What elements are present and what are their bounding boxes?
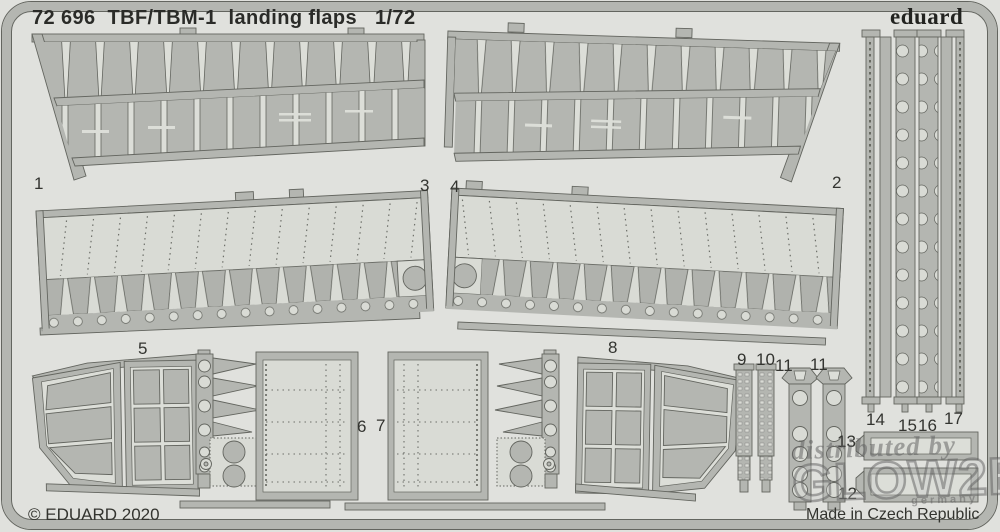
part-label-17: 17 xyxy=(944,410,963,427)
part-label-4: 4 xyxy=(450,178,459,195)
part-7-skin xyxy=(388,352,488,500)
actuator-strip-left xyxy=(196,350,260,488)
photoetch-sheet: 72 696 TBF/TBM-1 landing flaps 1/72 edua… xyxy=(0,0,1000,532)
eduard-logo: eduard xyxy=(890,5,963,28)
part-label-8: 8 xyxy=(608,339,617,356)
part-6-skin xyxy=(256,352,358,500)
part-label-7: 7 xyxy=(376,417,385,434)
part-8-winglet xyxy=(575,357,742,502)
part-label-13: 13 xyxy=(837,433,856,450)
made-in-text: Made in Czech Republic xyxy=(806,507,979,523)
part-label-2: 2 xyxy=(832,174,841,191)
part-label-1: 1 xyxy=(34,175,43,192)
copyright-text: © EDUARD 2020 xyxy=(28,506,160,523)
parts-14-17-stiffeners xyxy=(862,30,964,412)
part-label-16: 16 xyxy=(918,417,937,434)
part-label-14: 14 xyxy=(866,411,885,428)
part-5-winglet xyxy=(32,354,199,499)
part-label-12: 12 xyxy=(838,485,857,502)
part-11-strip-a xyxy=(782,368,818,510)
actuator-strip-right xyxy=(495,350,559,488)
part-13-tray xyxy=(856,432,978,460)
parts-9-10-strips xyxy=(734,364,776,492)
part-label-11b: 11 xyxy=(810,356,828,373)
sheet-title: 72 696 TBF/TBM-1 landing flaps 1/72 xyxy=(32,8,415,28)
part-3-flap xyxy=(36,182,434,331)
fret-graphic xyxy=(0,0,1000,532)
part-12-tray xyxy=(856,468,978,502)
part-1-flap xyxy=(32,28,425,180)
part-label-11a: 11 xyxy=(775,357,793,374)
part-label-6: 6 xyxy=(357,418,366,435)
part-label-10: 10 xyxy=(756,351,775,368)
part-label-3: 3 xyxy=(420,177,429,194)
part-2-flap xyxy=(444,21,841,183)
part-4-flap xyxy=(446,180,844,329)
part-label-15: 15 xyxy=(898,417,917,434)
part-label-9: 9 xyxy=(737,351,746,368)
part-label-5: 5 xyxy=(138,340,147,357)
